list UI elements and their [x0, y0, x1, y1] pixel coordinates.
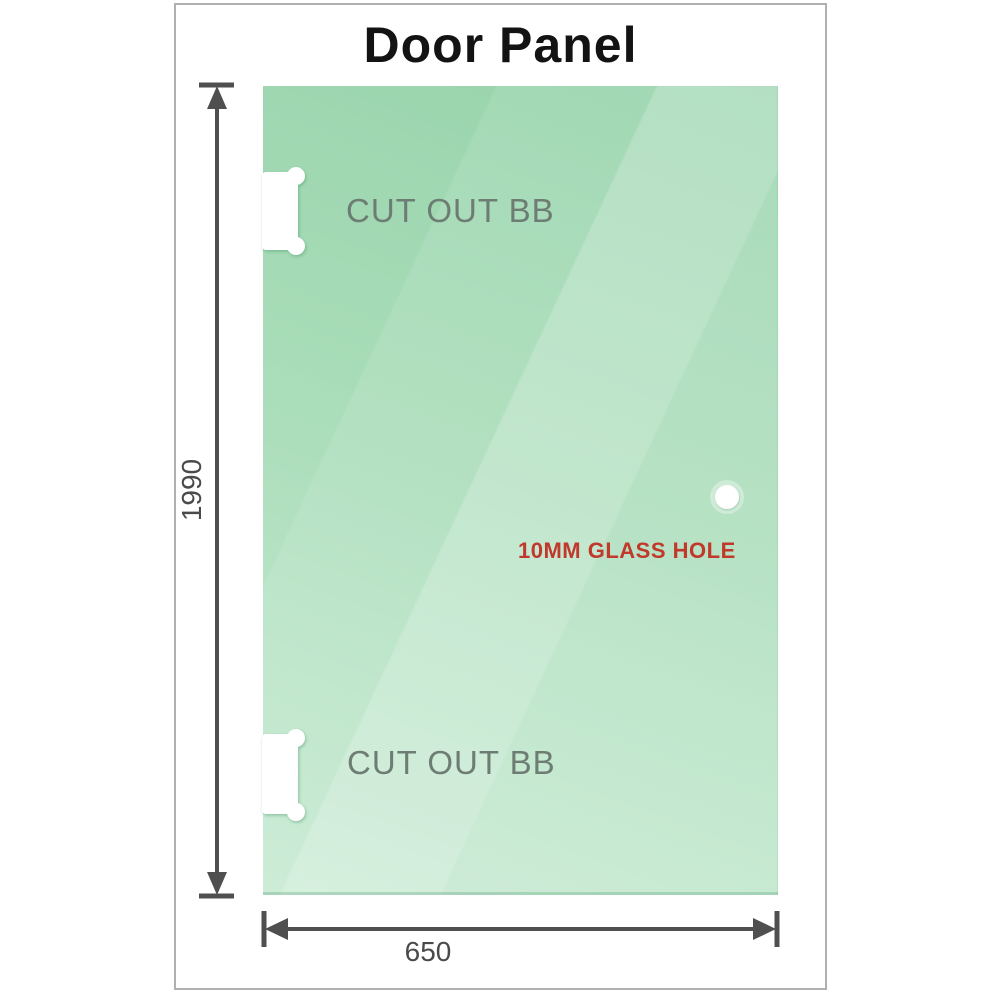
diagram-title: Door Panel — [174, 16, 827, 74]
hinge-cutout-top-shape — [262, 167, 305, 255]
glass-hole-shape — [710, 480, 744, 514]
hinge-cutout-bottom-shape — [262, 729, 305, 821]
cutout-label-top: CUT OUT BB — [346, 193, 555, 229]
width-dimension-value: 650 — [383, 936, 473, 968]
diagram-stage: Door Panel — [0, 0, 1000, 1000]
cutout-label-bottom: CUT OUT BB — [347, 745, 556, 781]
glass-hole-label: 10MM GLASS HOLE — [518, 538, 736, 564]
height-dimension-value: 1990 — [157, 455, 227, 525]
